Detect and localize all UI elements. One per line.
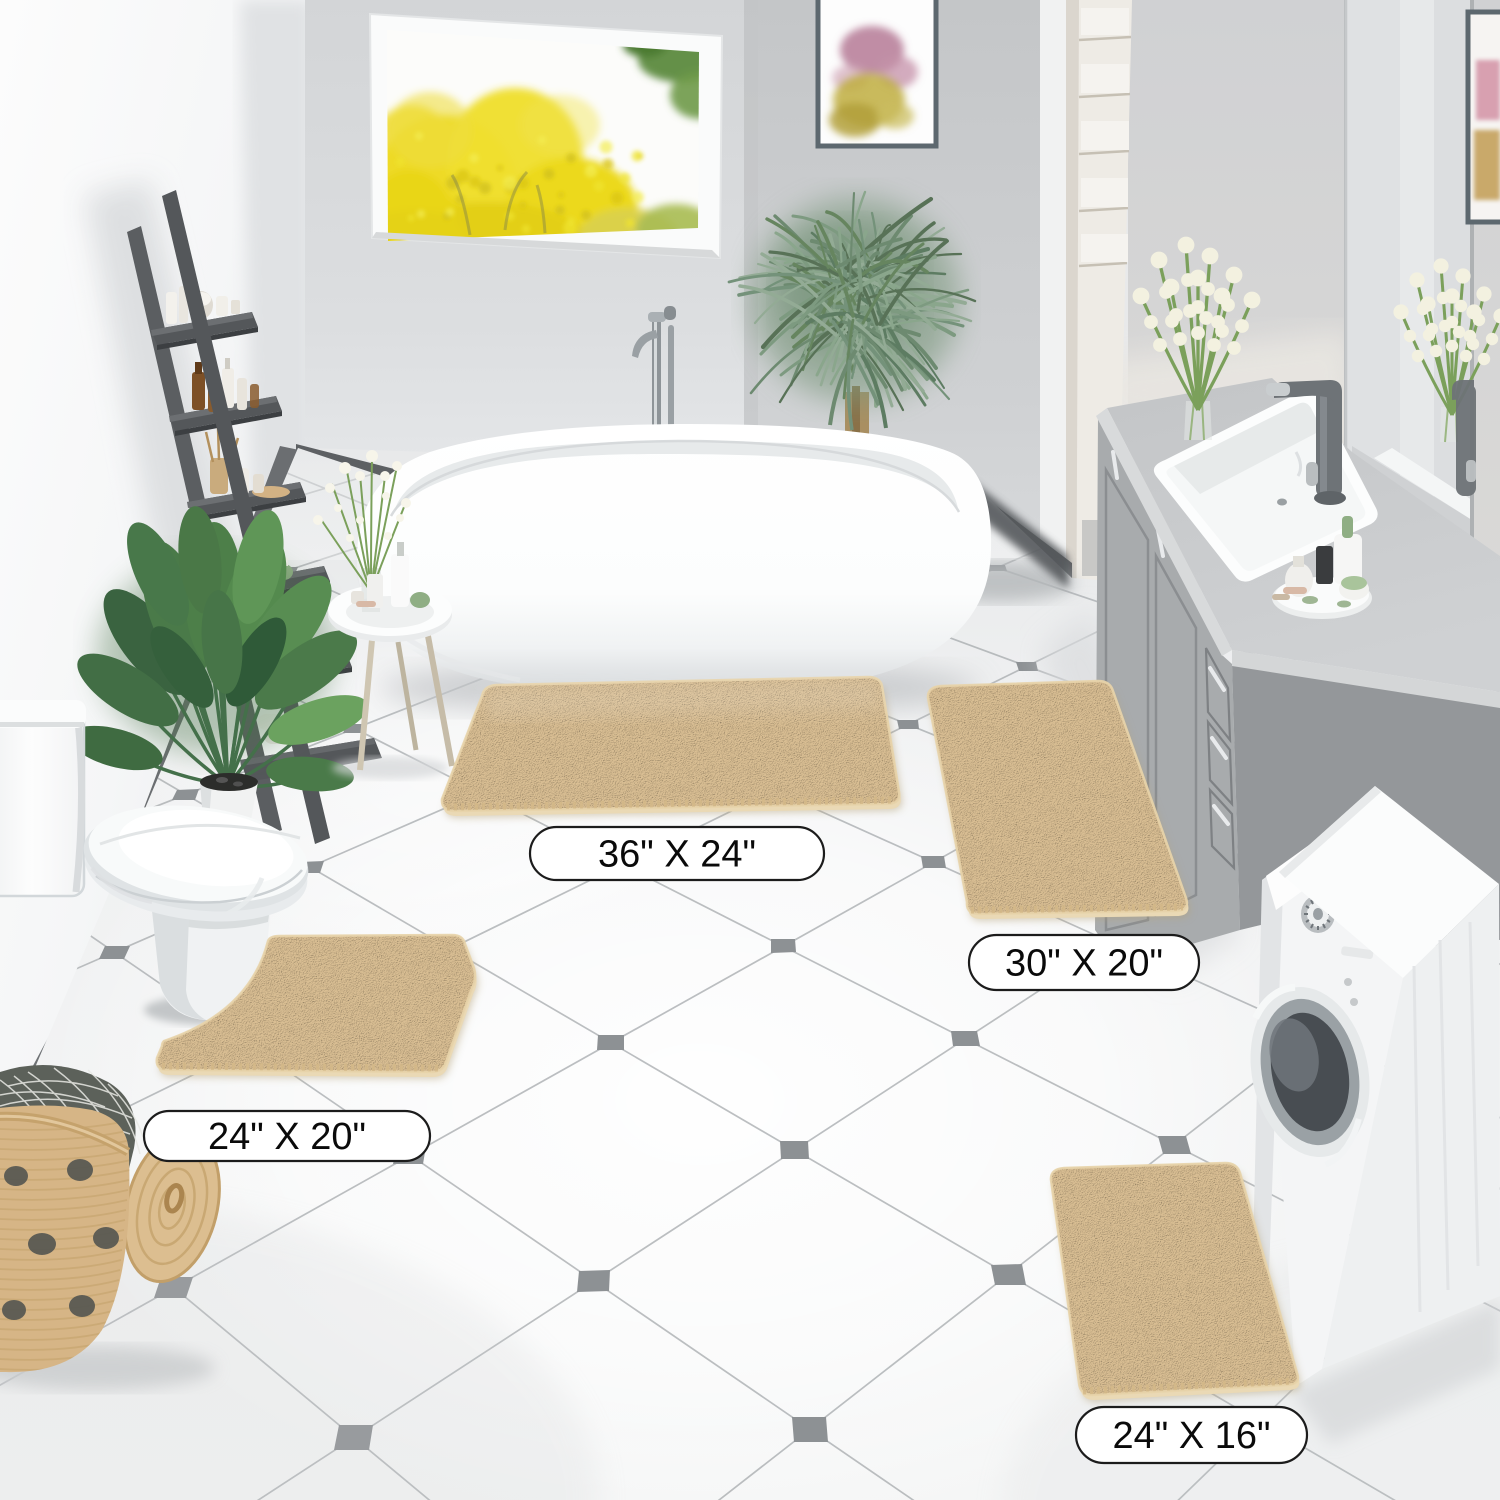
svg-text:36" X 24": 36" X 24" <box>598 834 756 876</box>
svg-text:24" X 16": 24" X 16" <box>1113 1415 1271 1457</box>
svg-text:30" X 20": 30" X 20" <box>1005 943 1163 985</box>
svg-text:24" X 20": 24" X 20" <box>208 1116 366 1158</box>
